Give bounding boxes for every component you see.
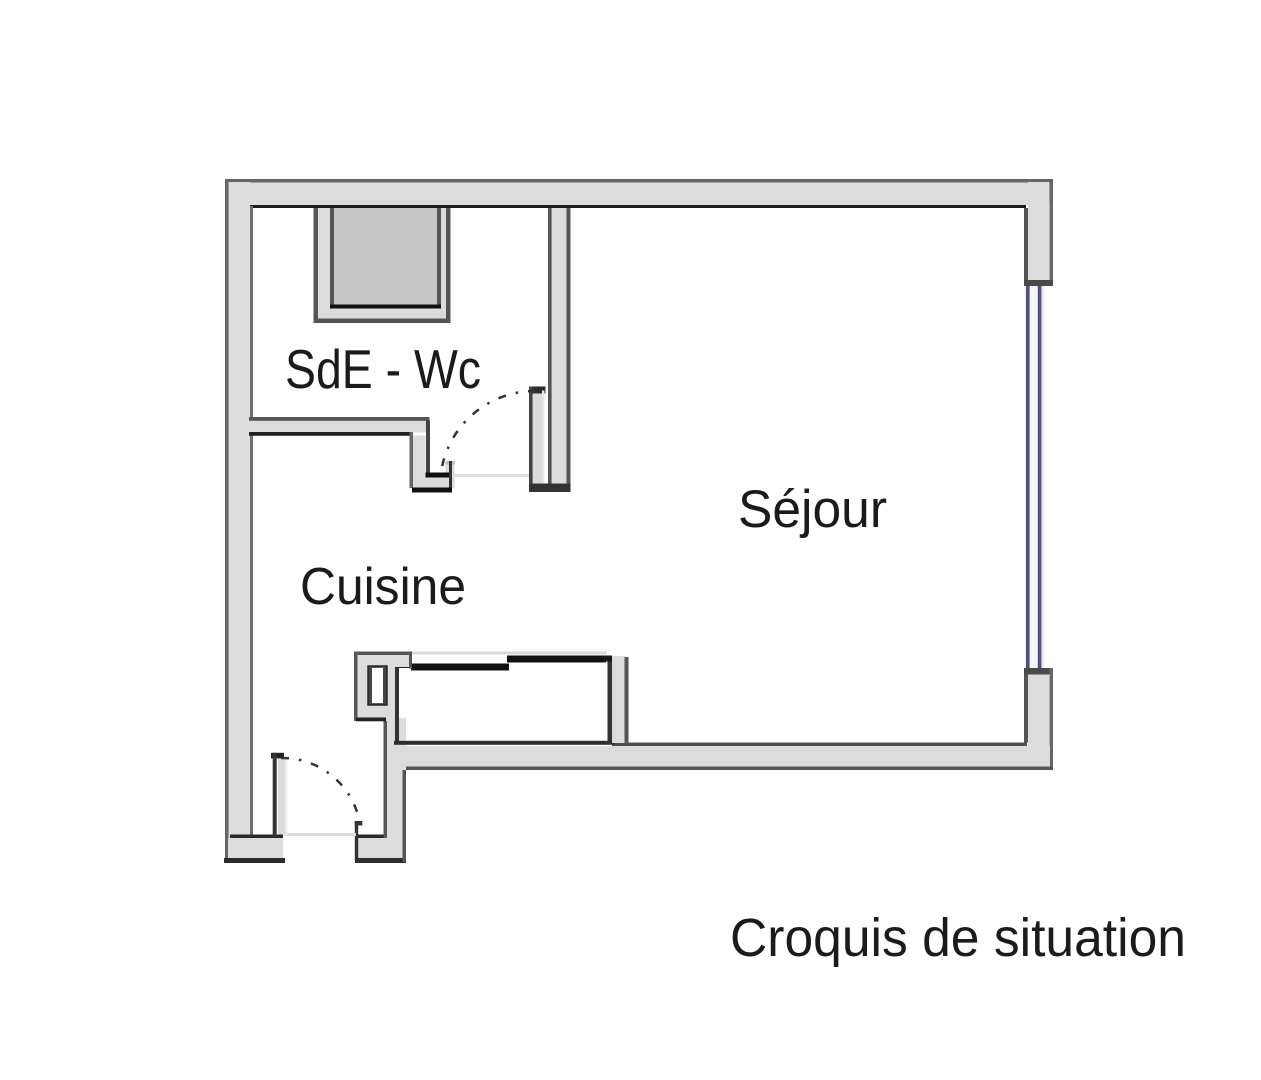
- svg-text:Cuisine: Cuisine: [300, 558, 466, 616]
- svg-text:SdE - Wc: SdE - Wc: [285, 338, 481, 400]
- svg-text:Séjour: Séjour: [738, 480, 887, 539]
- svg-text:Croquis de situation: Croquis de situation: [730, 909, 1186, 968]
